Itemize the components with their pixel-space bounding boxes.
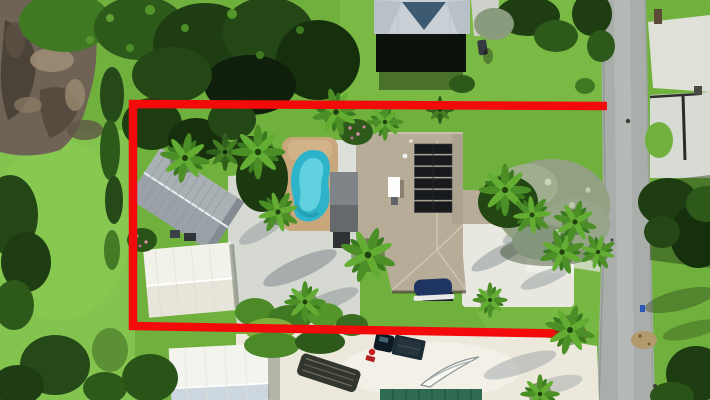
workshop-shadow [268,352,280,400]
white-shed [143,242,240,318]
ground-speck [638,334,641,337]
neighbor-shadow [376,34,466,72]
ac-unit [184,233,196,241]
blue-marker [640,305,645,312]
flat-roof-upper [330,172,358,205]
ground-speck [648,343,651,346]
road-object [626,119,630,123]
red-equipment [369,349,375,355]
dirt-patch-right [631,331,657,349]
scrub-patch [92,328,128,372]
flat-roof-lower [330,205,358,232]
aerial-photo [0,0,710,400]
road-object [610,238,613,241]
ac-unit [170,230,180,238]
ground-speck [653,384,657,388]
covered-boat [413,278,455,301]
mailbox [654,9,662,24]
teal-roof [380,389,482,400]
roof-vent [388,177,400,197]
